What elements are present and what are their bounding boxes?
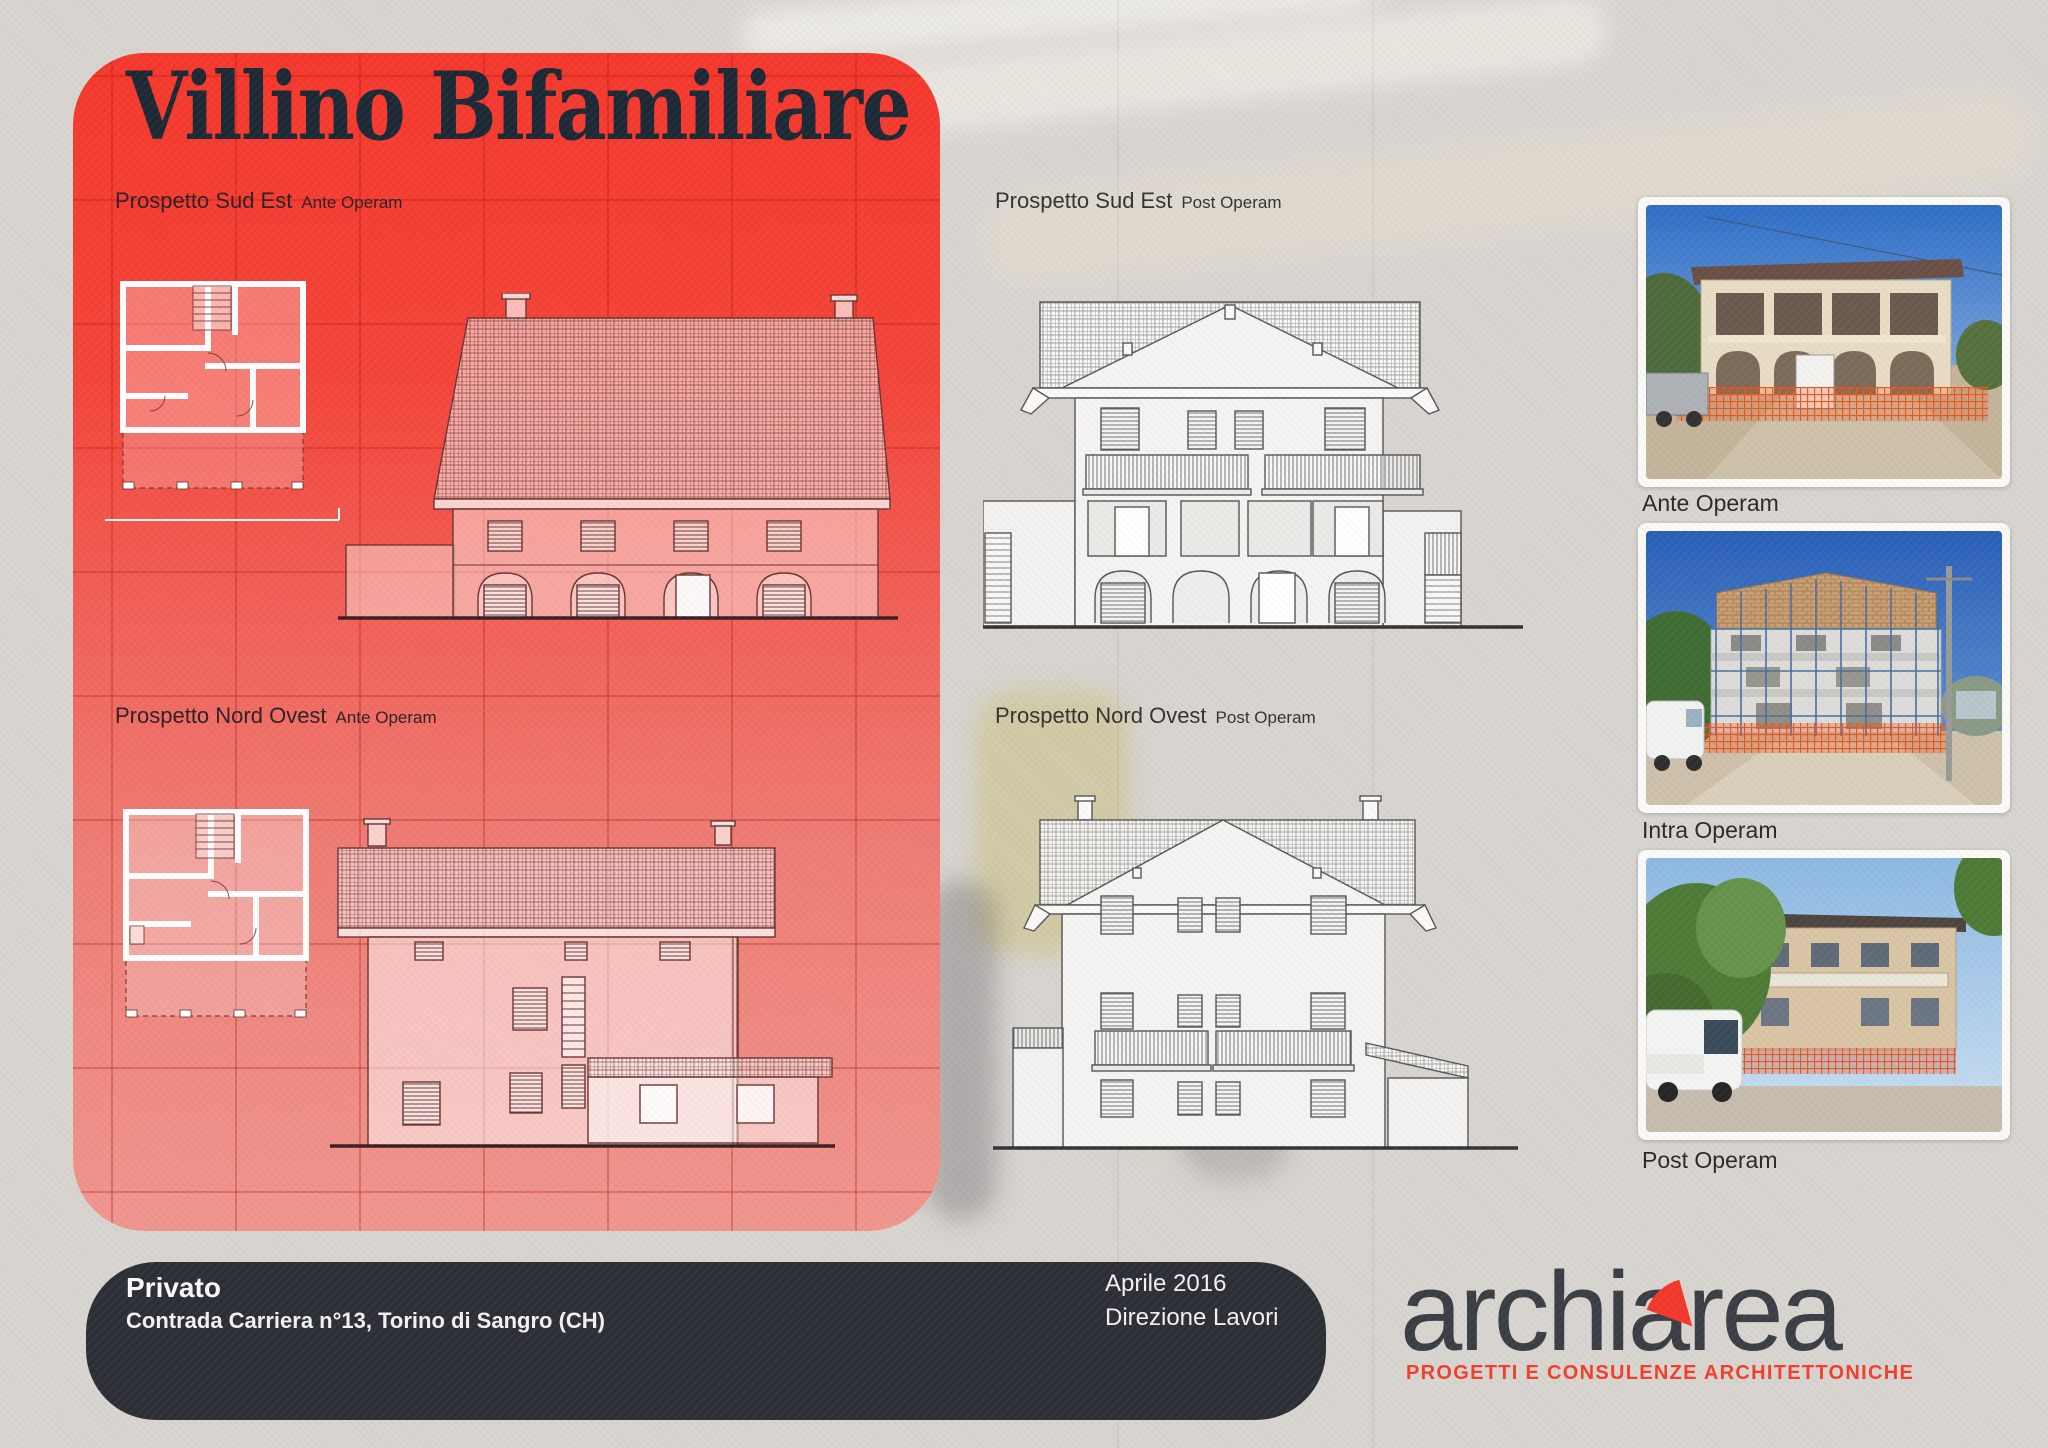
- footer-bar: Privato Contrada Carriera n°13, Torino d…: [86, 1262, 1326, 1420]
- photo-ante-operam-image: [1646, 205, 2002, 479]
- elevation-sud-est-post: [983, 283, 1528, 635]
- presentation-board: Villino Bifamiliare Prospetto Sud Est An…: [0, 0, 2048, 1448]
- logo-wordmark: archiarea: [1400, 1256, 1840, 1368]
- photo-caption-intra-operam: Intra Operam: [1642, 817, 1778, 844]
- photo-caption-post-operam: Post Operam: [1642, 1147, 1778, 1174]
- floor-plan-sud-est: [105, 278, 350, 528]
- photo-post-operam: [1638, 850, 2010, 1140]
- section-label-sub: Post Operam: [1181, 193, 1281, 213]
- section-label-sub: Post Operam: [1216, 708, 1316, 728]
- section-label-sub: Ante Operam: [301, 193, 402, 213]
- project-phase: Direzione Lavori: [1105, 1304, 1278, 1332]
- section-label-nord-ovest-ante: Prospetto Nord Ovest Ante Operam: [115, 703, 437, 729]
- elevation-sud-est-ante: [338, 293, 903, 628]
- photo-caption-ante-operam: Ante Operam: [1642, 490, 1779, 517]
- page-title: Villino Bifamiliare: [126, 52, 910, 162]
- project-address: Contrada Carriera n°13, Torino di Sangro…: [126, 1308, 605, 1334]
- background-fold-line: [1372, 0, 1374, 1448]
- section-label-main: Prospetto Sud Est: [995, 188, 1172, 214]
- section-label-sud-est-ante: Prospetto Sud Est Ante Operam: [115, 188, 402, 214]
- project-date: Aprile 2016: [1105, 1270, 1226, 1298]
- section-label-sub: Ante Operam: [336, 708, 437, 728]
- section-label-main: Prospetto Nord Ovest: [115, 703, 327, 729]
- elevation-nord-ovest-ante: [330, 818, 860, 1160]
- photo-post-operam-image: [1646, 858, 2002, 1132]
- floor-plan-nord-ovest: [108, 806, 353, 1056]
- elevation-nord-ovest-post: [988, 788, 1523, 1156]
- photo-ante-operam: [1638, 197, 2010, 487]
- section-label-main: Prospetto Nord Ovest: [995, 703, 1207, 729]
- section-label-sud-est-post: Prospetto Sud Est Post Operam: [995, 188, 1281, 214]
- logo-pie-icon: [1638, 1276, 1700, 1332]
- section-label-nord-ovest-post: Prospetto Nord Ovest Post Operam: [995, 703, 1316, 729]
- logo-tagline: PROGETTI E CONSULENZE ARCHITETTONICHE: [1406, 1362, 1914, 1385]
- client-name: Privato: [126, 1272, 221, 1304]
- photo-intra-operam-image: [1646, 531, 2002, 805]
- section-label-main: Prospetto Sud Est: [115, 188, 292, 214]
- photo-intra-operam: [1638, 523, 2010, 813]
